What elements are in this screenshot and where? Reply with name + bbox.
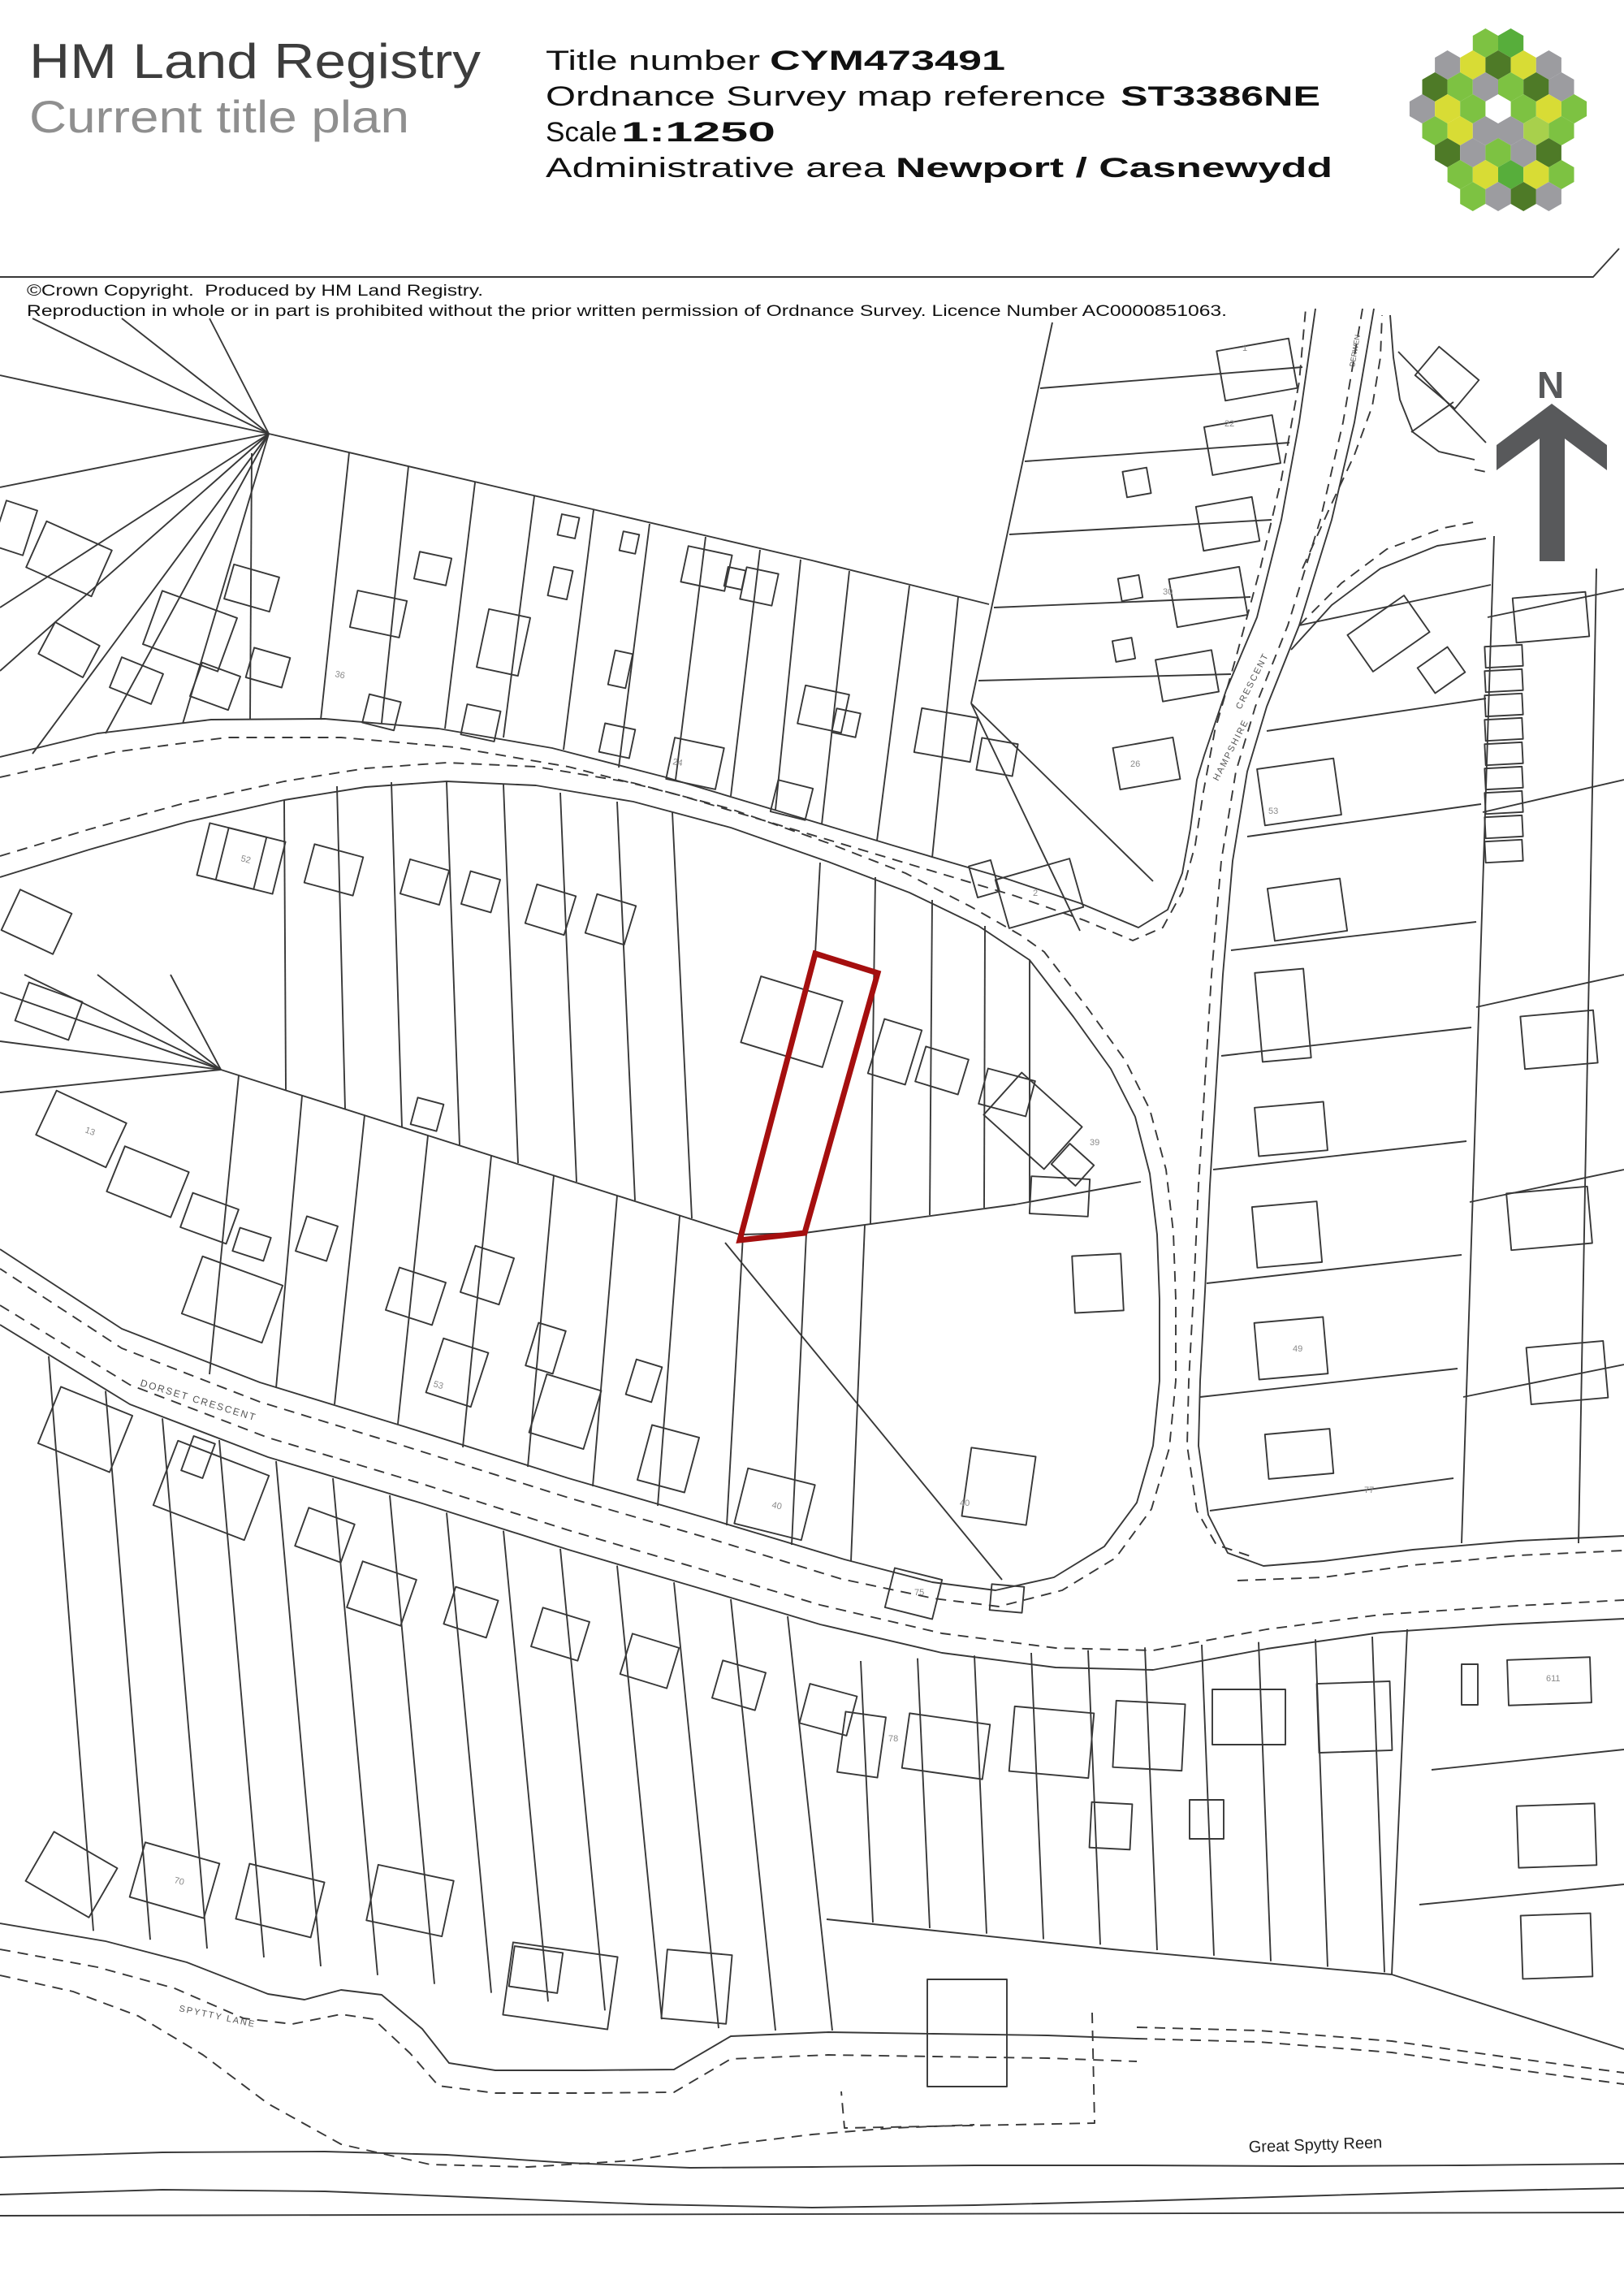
svg-text:2: 2 <box>1033 889 1038 898</box>
svg-text:78: 78 <box>888 1734 898 1744</box>
svg-text:22: 22 <box>1224 419 1234 429</box>
svg-text:Reproduction in whole or in pa: Reproduction in whole or in part is proh… <box>27 303 1227 320</box>
svg-text:1: 1 <box>1242 344 1247 353</box>
svg-text:1:1250: 1:1250 <box>621 117 775 148</box>
svg-text:611: 611 <box>1546 1674 1561 1684</box>
svg-text:Newport / Casnewydd: Newport / Casnewydd <box>896 153 1332 184</box>
svg-text:ST3386NE: ST3386NE <box>1121 81 1320 112</box>
svg-text:Current title plan: Current title plan <box>29 91 409 142</box>
svg-text:53: 53 <box>1268 807 1278 816</box>
svg-text:75: 75 <box>914 1588 924 1598</box>
svg-text:77: 77 <box>1364 1486 1374 1495</box>
svg-text:40: 40 <box>960 1499 970 1508</box>
svg-text:24: 24 <box>672 757 683 768</box>
svg-text:39: 39 <box>1090 1138 1099 1148</box>
svg-text:36: 36 <box>334 669 345 681</box>
svg-text:49: 49 <box>1293 1344 1302 1354</box>
svg-text:HM Land Registry: HM Land Registry <box>29 34 481 89</box>
svg-text:Ordnance Survey map reference: Ordnance Survey map reference <box>546 81 1106 112</box>
svg-text:26: 26 <box>1130 759 1140 769</box>
svg-text:Administrative area: Administrative area <box>546 153 885 184</box>
svg-text:Scale: Scale <box>546 117 617 148</box>
svg-text:©Crown Copyright. Produced by: ©Crown Copyright. Produced by HM Land Re… <box>27 283 483 300</box>
svg-text:40: 40 <box>771 1500 782 1512</box>
svg-text:N: N <box>1537 364 1564 406</box>
svg-text:CYM473491: CYM473491 <box>770 45 1005 76</box>
svg-text:Title number: Title number <box>546 45 760 76</box>
svg-text:30: 30 <box>1163 587 1173 597</box>
